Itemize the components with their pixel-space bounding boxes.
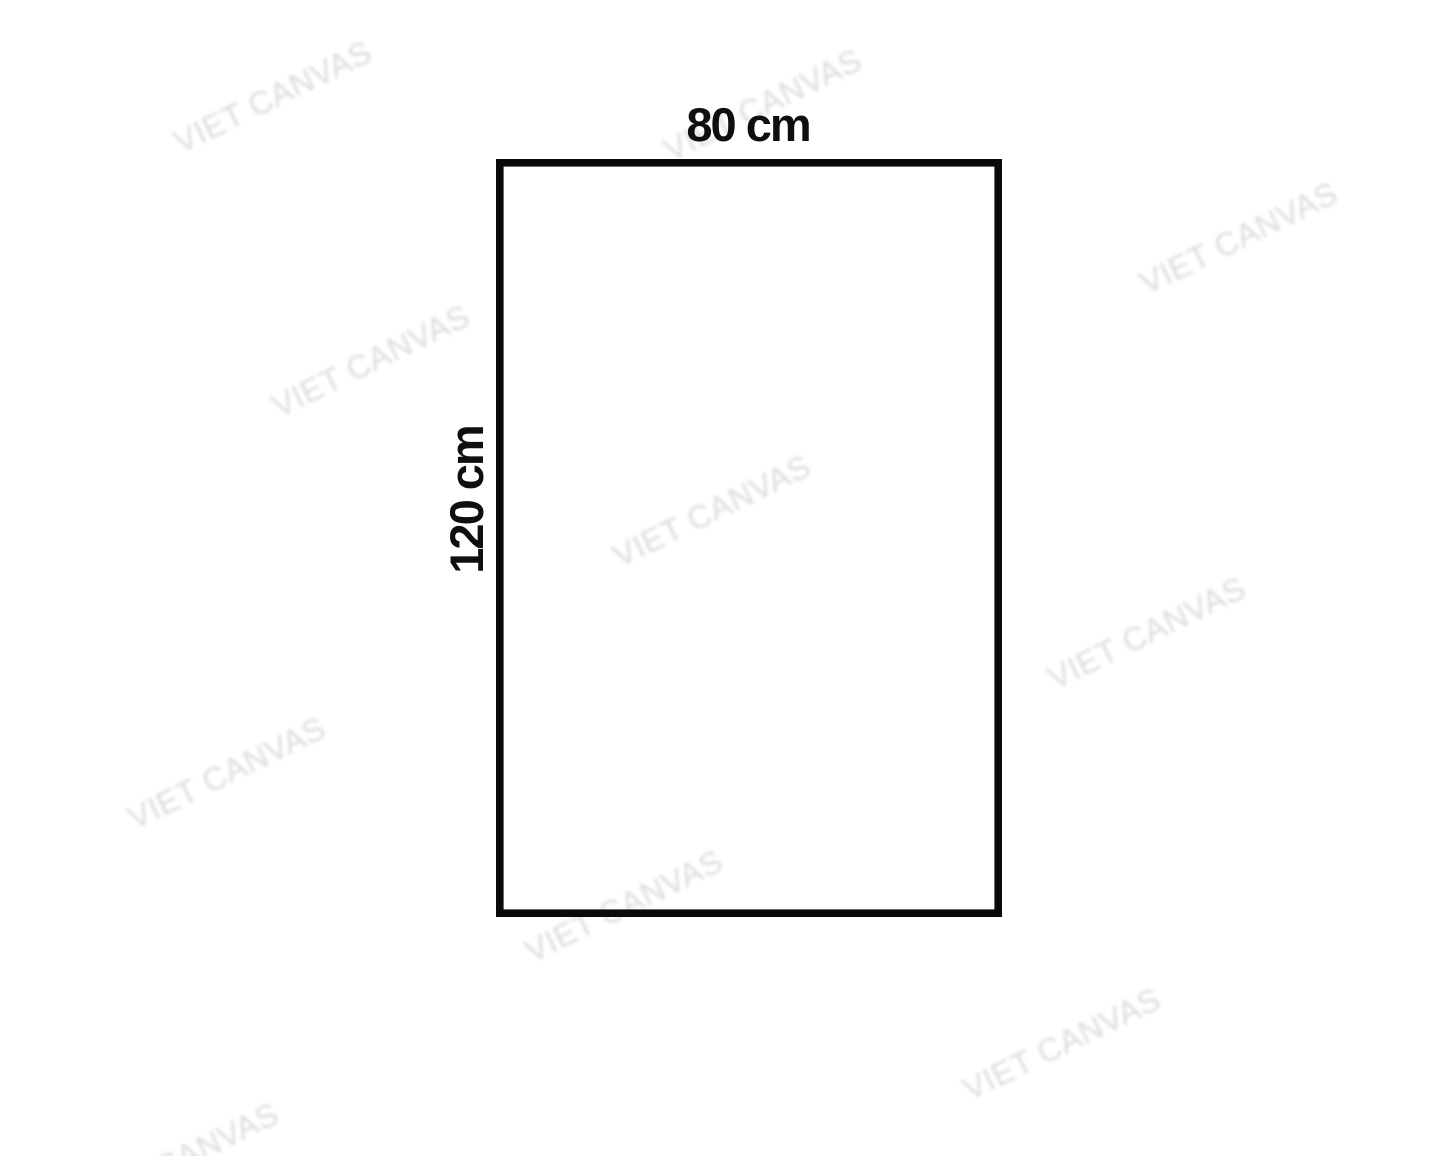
svg-text:VIET CANVAS: VIET CANVAS <box>168 34 377 161</box>
svg-text:80 cm: 80 cm <box>686 98 809 151</box>
svg-text:VIET CANVAS: VIET CANVAS <box>266 298 475 425</box>
svg-text:VIET CANVAS: VIET CANVAS <box>122 710 331 837</box>
svg-text:VIET CANVAS: VIET CANVAS <box>607 448 816 575</box>
svg-text:120 cm: 120 cm <box>440 426 493 573</box>
svg-text:VIET CANVAS: VIET CANVAS <box>1134 175 1343 302</box>
svg-text:VIET CANVAS: VIET CANVAS <box>957 981 1166 1108</box>
svg-text:VIET CANVAS: VIET CANVAS <box>75 1096 284 1156</box>
svg-text:VIET CANVAS: VIET CANVAS <box>1042 570 1251 697</box>
svg-text:VIET CANVAS: VIET CANVAS <box>519 843 728 970</box>
